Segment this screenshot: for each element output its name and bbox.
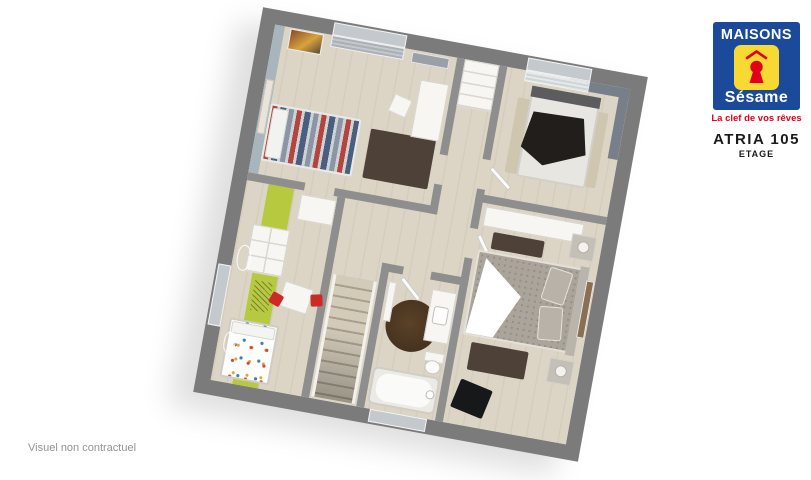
floorplan-3d [193,7,648,462]
master-pillow-2 [537,306,563,342]
floor-label: ETAGE [698,149,811,159]
logo-text-sesame: Sésame [713,89,800,107]
logo-tagline: La clef de vos rêves [698,113,811,124]
logo-text-maisons: MAISONS [713,27,800,43]
kids-chair-red-2 [310,294,322,306]
maisons-sesame-logo: MAISONS Sésame [713,22,800,110]
disclaimer-text: Visuel non contractuel [28,442,136,454]
model-name: ATRIA 105 [698,131,811,148]
bathroom-sink [431,306,449,326]
keyhole-icon [734,45,779,90]
